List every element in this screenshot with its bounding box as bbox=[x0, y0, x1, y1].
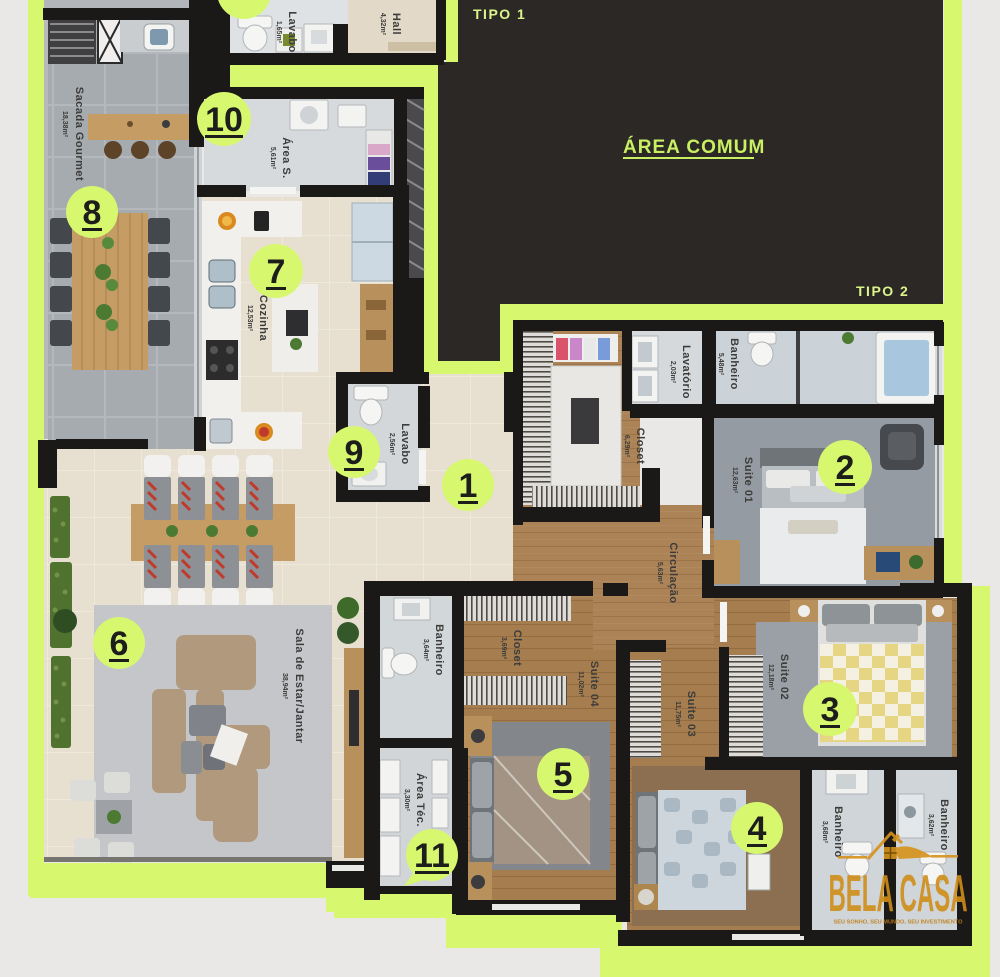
svg-text:9: 9 bbox=[345, 434, 364, 472]
svg-text:Lavabo: Lavabo bbox=[286, 11, 298, 53]
svg-text:3,68m²: 3,68m² bbox=[821, 821, 828, 844]
svg-text:3,30m²: 3,30m² bbox=[403, 789, 410, 812]
svg-text:12,63m²: 12,63m² bbox=[731, 467, 738, 494]
svg-text:6,29m²: 6,29m² bbox=[623, 435, 630, 458]
svg-text:1: 1 bbox=[459, 467, 478, 505]
svg-text:10: 10 bbox=[205, 101, 243, 139]
svg-text:11,75m²: 11,75m² bbox=[674, 701, 681, 727]
svg-text:TIPO 2: TIPO 2 bbox=[856, 283, 909, 299]
svg-text:Closet: Closet bbox=[634, 428, 646, 465]
svg-text:12,18m²: 12,18m² bbox=[767, 664, 774, 691]
svg-text:Suite 02: Suite 02 bbox=[778, 654, 790, 700]
svg-text:5,61m²: 5,61m² bbox=[269, 147, 276, 170]
svg-text:Sacada Gourmet: Sacada Gourmet bbox=[73, 87, 85, 181]
svg-text:5: 5 bbox=[554, 756, 573, 794]
svg-text:Área S.: Área S. bbox=[280, 137, 293, 178]
svg-text:1,65m²: 1,65m² bbox=[275, 21, 282, 44]
svg-text:3: 3 bbox=[821, 691, 840, 729]
svg-text:6: 6 bbox=[110, 625, 129, 663]
svg-text:4,32m²: 4,32m² bbox=[379, 13, 386, 36]
svg-text:Suite 04: Suite 04 bbox=[588, 661, 600, 708]
svg-text:Hall: Hall bbox=[390, 13, 402, 35]
svg-text:Circulação: Circulação bbox=[667, 542, 679, 603]
svg-text:2,56m²: 2,56m² bbox=[388, 433, 395, 456]
svg-text:2: 2 bbox=[836, 449, 855, 487]
svg-text:5,48m²: 5,48m² bbox=[717, 353, 724, 376]
svg-text:5,63m²: 5,63m² bbox=[656, 562, 663, 585]
svg-text:38,94m²: 38,94m² bbox=[281, 673, 288, 700]
svg-text:11: 11 bbox=[414, 837, 450, 875]
svg-text:BELA CASA: BELA CASA bbox=[828, 863, 967, 922]
svg-text:18,38m²: 18,38m² bbox=[61, 111, 68, 138]
svg-text:3,64m²: 3,64m² bbox=[422, 639, 429, 662]
svg-text:3,62m²: 3,62m² bbox=[927, 814, 934, 837]
svg-text:Cozinha: Cozinha bbox=[257, 295, 269, 342]
svg-text:11,02m²: 11,02m² bbox=[577, 671, 584, 697]
svg-text:Banheiro: Banheiro bbox=[832, 806, 844, 858]
svg-text:Sala de Estar/Jantar: Sala de Estar/Jantar bbox=[293, 628, 305, 743]
svg-text:12,53m²: 12,53m² bbox=[246, 305, 253, 332]
svg-text:Closet: Closet bbox=[511, 630, 523, 667]
svg-text:TIPO 1: TIPO 1 bbox=[473, 6, 526, 22]
svg-text:8: 8 bbox=[83, 194, 102, 232]
svg-text:Banheiro: Banheiro bbox=[433, 624, 445, 676]
svg-text:SEU SONHO, SEU MUNDO, SEU INVE: SEU SONHO, SEU MUNDO, SEU INVESTIMENTO bbox=[834, 920, 964, 926]
svg-text:Lavatório: Lavatório bbox=[680, 345, 692, 399]
svg-text:7: 7 bbox=[267, 253, 286, 291]
svg-text:3,69m²: 3,69m² bbox=[500, 637, 507, 660]
svg-text:Área Téc.: Área Téc. bbox=[414, 773, 427, 827]
svg-text:2,03m²: 2,03m² bbox=[669, 361, 676, 384]
svg-text:Banheiro: Banheiro bbox=[938, 799, 950, 851]
svg-text:Banheiro: Banheiro bbox=[728, 338, 740, 390]
svg-text:Lavabo: Lavabo bbox=[399, 423, 411, 465]
svg-text:4: 4 bbox=[748, 810, 767, 848]
svg-text:Suite 03: Suite 03 bbox=[685, 691, 697, 737]
svg-text:Suite 01: Suite 01 bbox=[742, 457, 754, 503]
svg-text:ÁREA COMUM: ÁREA COMUM bbox=[623, 136, 765, 158]
